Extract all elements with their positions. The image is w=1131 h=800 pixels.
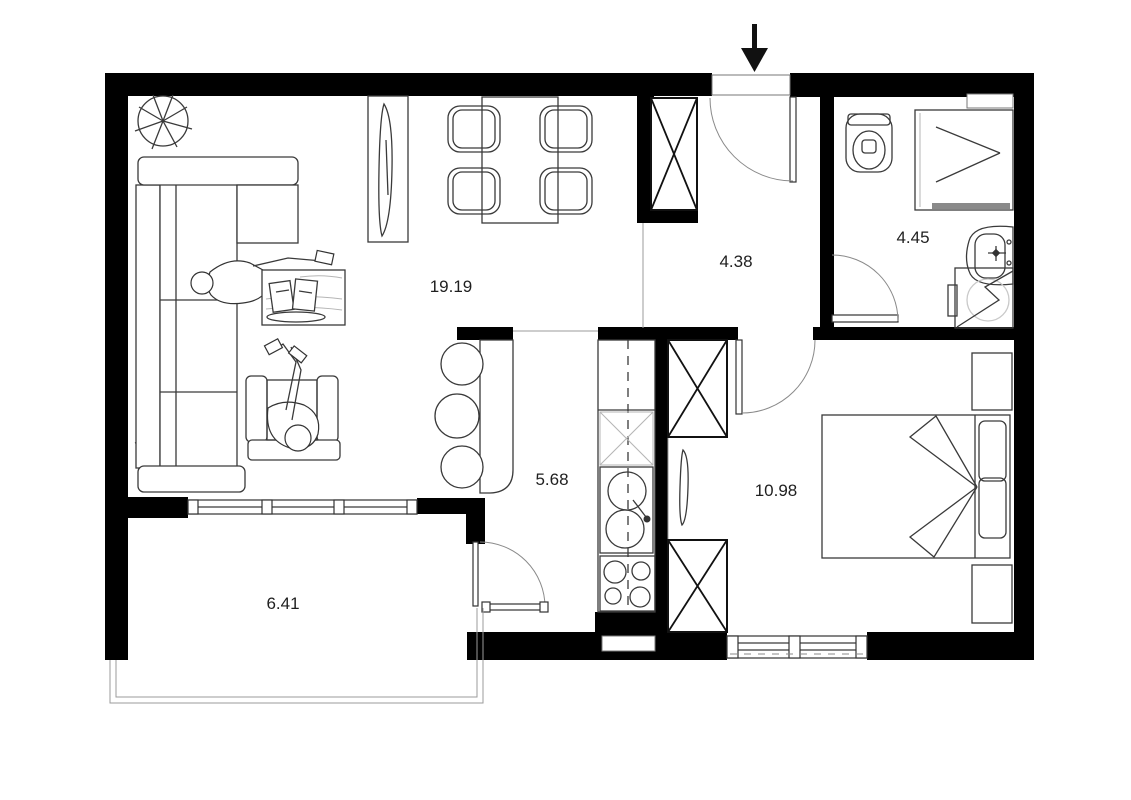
dining-set	[448, 97, 592, 223]
entrance-threshold	[712, 75, 790, 95]
nightstand	[972, 565, 1012, 623]
kitchen-wall-niche	[602, 636, 655, 651]
pillow	[979, 421, 1006, 481]
bedroom: 10.98	[668, 340, 1012, 632]
bathroom-door	[832, 255, 898, 322]
toilet-icon	[846, 114, 892, 172]
wall-bottom-right	[867, 632, 1014, 660]
floor-plan-svg: 19.19 4.38	[0, 0, 1131, 800]
wall-bathroom-left	[820, 96, 834, 340]
bar-stool	[435, 394, 479, 438]
shower-icon	[915, 110, 1013, 210]
dining-chair	[448, 168, 500, 214]
dining-chair	[540, 106, 592, 152]
kitchen-counter	[598, 340, 655, 612]
living-window	[188, 500, 417, 514]
wall-top-left	[105, 73, 712, 96]
person-on-armchair	[264, 339, 318, 451]
mirror-icon	[680, 450, 688, 525]
blanket-fold	[910, 487, 977, 557]
blanket-fold	[910, 416, 977, 487]
kitchen-sink-icon	[600, 467, 653, 553]
plant-icon	[135, 95, 192, 149]
bar-stool	[441, 343, 483, 385]
boundary-lines	[513, 223, 668, 540]
hall-closet	[651, 98, 697, 210]
wall-bedroom-top	[813, 327, 1014, 340]
pillow	[979, 478, 1006, 538]
hallway-area-label: 4.38	[719, 252, 752, 271]
bar-stool	[441, 446, 483, 488]
living-room-area-label: 19.19	[430, 277, 473, 296]
wall-bottom-left	[467, 632, 727, 660]
kitchen: 5.68	[435, 340, 655, 612]
bathroom: 4.45	[846, 110, 1013, 328]
wall-kitchen-top-a	[457, 327, 513, 340]
nightstand	[972, 353, 1012, 410]
dining-chair	[540, 168, 592, 214]
kitchen-balcony-door	[473, 542, 548, 612]
balcony-area-label: 6.41	[266, 594, 299, 613]
tv-icon	[379, 104, 392, 236]
dining-chair	[448, 106, 500, 152]
bathroom-area-label: 4.45	[896, 228, 929, 247]
bedroom-door	[736, 340, 815, 414]
bed	[822, 415, 1010, 558]
hallway: 4.38	[651, 98, 753, 271]
bedroom-window	[727, 636, 867, 658]
wall-top-right	[790, 73, 1034, 97]
wall-window-stub-left	[128, 497, 188, 518]
kitchen-area-label: 5.68	[535, 470, 568, 489]
wall-closet-stub	[637, 210, 698, 223]
entrance-door	[710, 97, 796, 182]
bar-counter	[435, 340, 513, 493]
wall-kitchen-right	[655, 340, 668, 634]
wall-left	[105, 73, 128, 660]
wardrobe-icon	[668, 540, 727, 632]
entrance-arrow-icon	[741, 24, 768, 72]
balcony-railing	[110, 608, 483, 703]
living-room: 19.19	[135, 95, 592, 492]
wall-kitchen-bottom-stub	[595, 612, 668, 634]
tv-sideboard	[368, 96, 408, 242]
wall-kitchen-top-b	[598, 327, 738, 340]
coffee-table	[262, 270, 345, 325]
balcony: 6.41	[266, 594, 299, 613]
washbasin-icon	[967, 226, 1014, 284]
floor-plan: 19.19 4.38	[0, 0, 1131, 800]
wall-kitchen-corner	[466, 498, 485, 544]
bedroom-area-label: 10.98	[755, 481, 798, 500]
wall-niche	[967, 94, 1013, 108]
wardrobe-icon	[668, 340, 727, 437]
wall-right	[1014, 75, 1034, 660]
